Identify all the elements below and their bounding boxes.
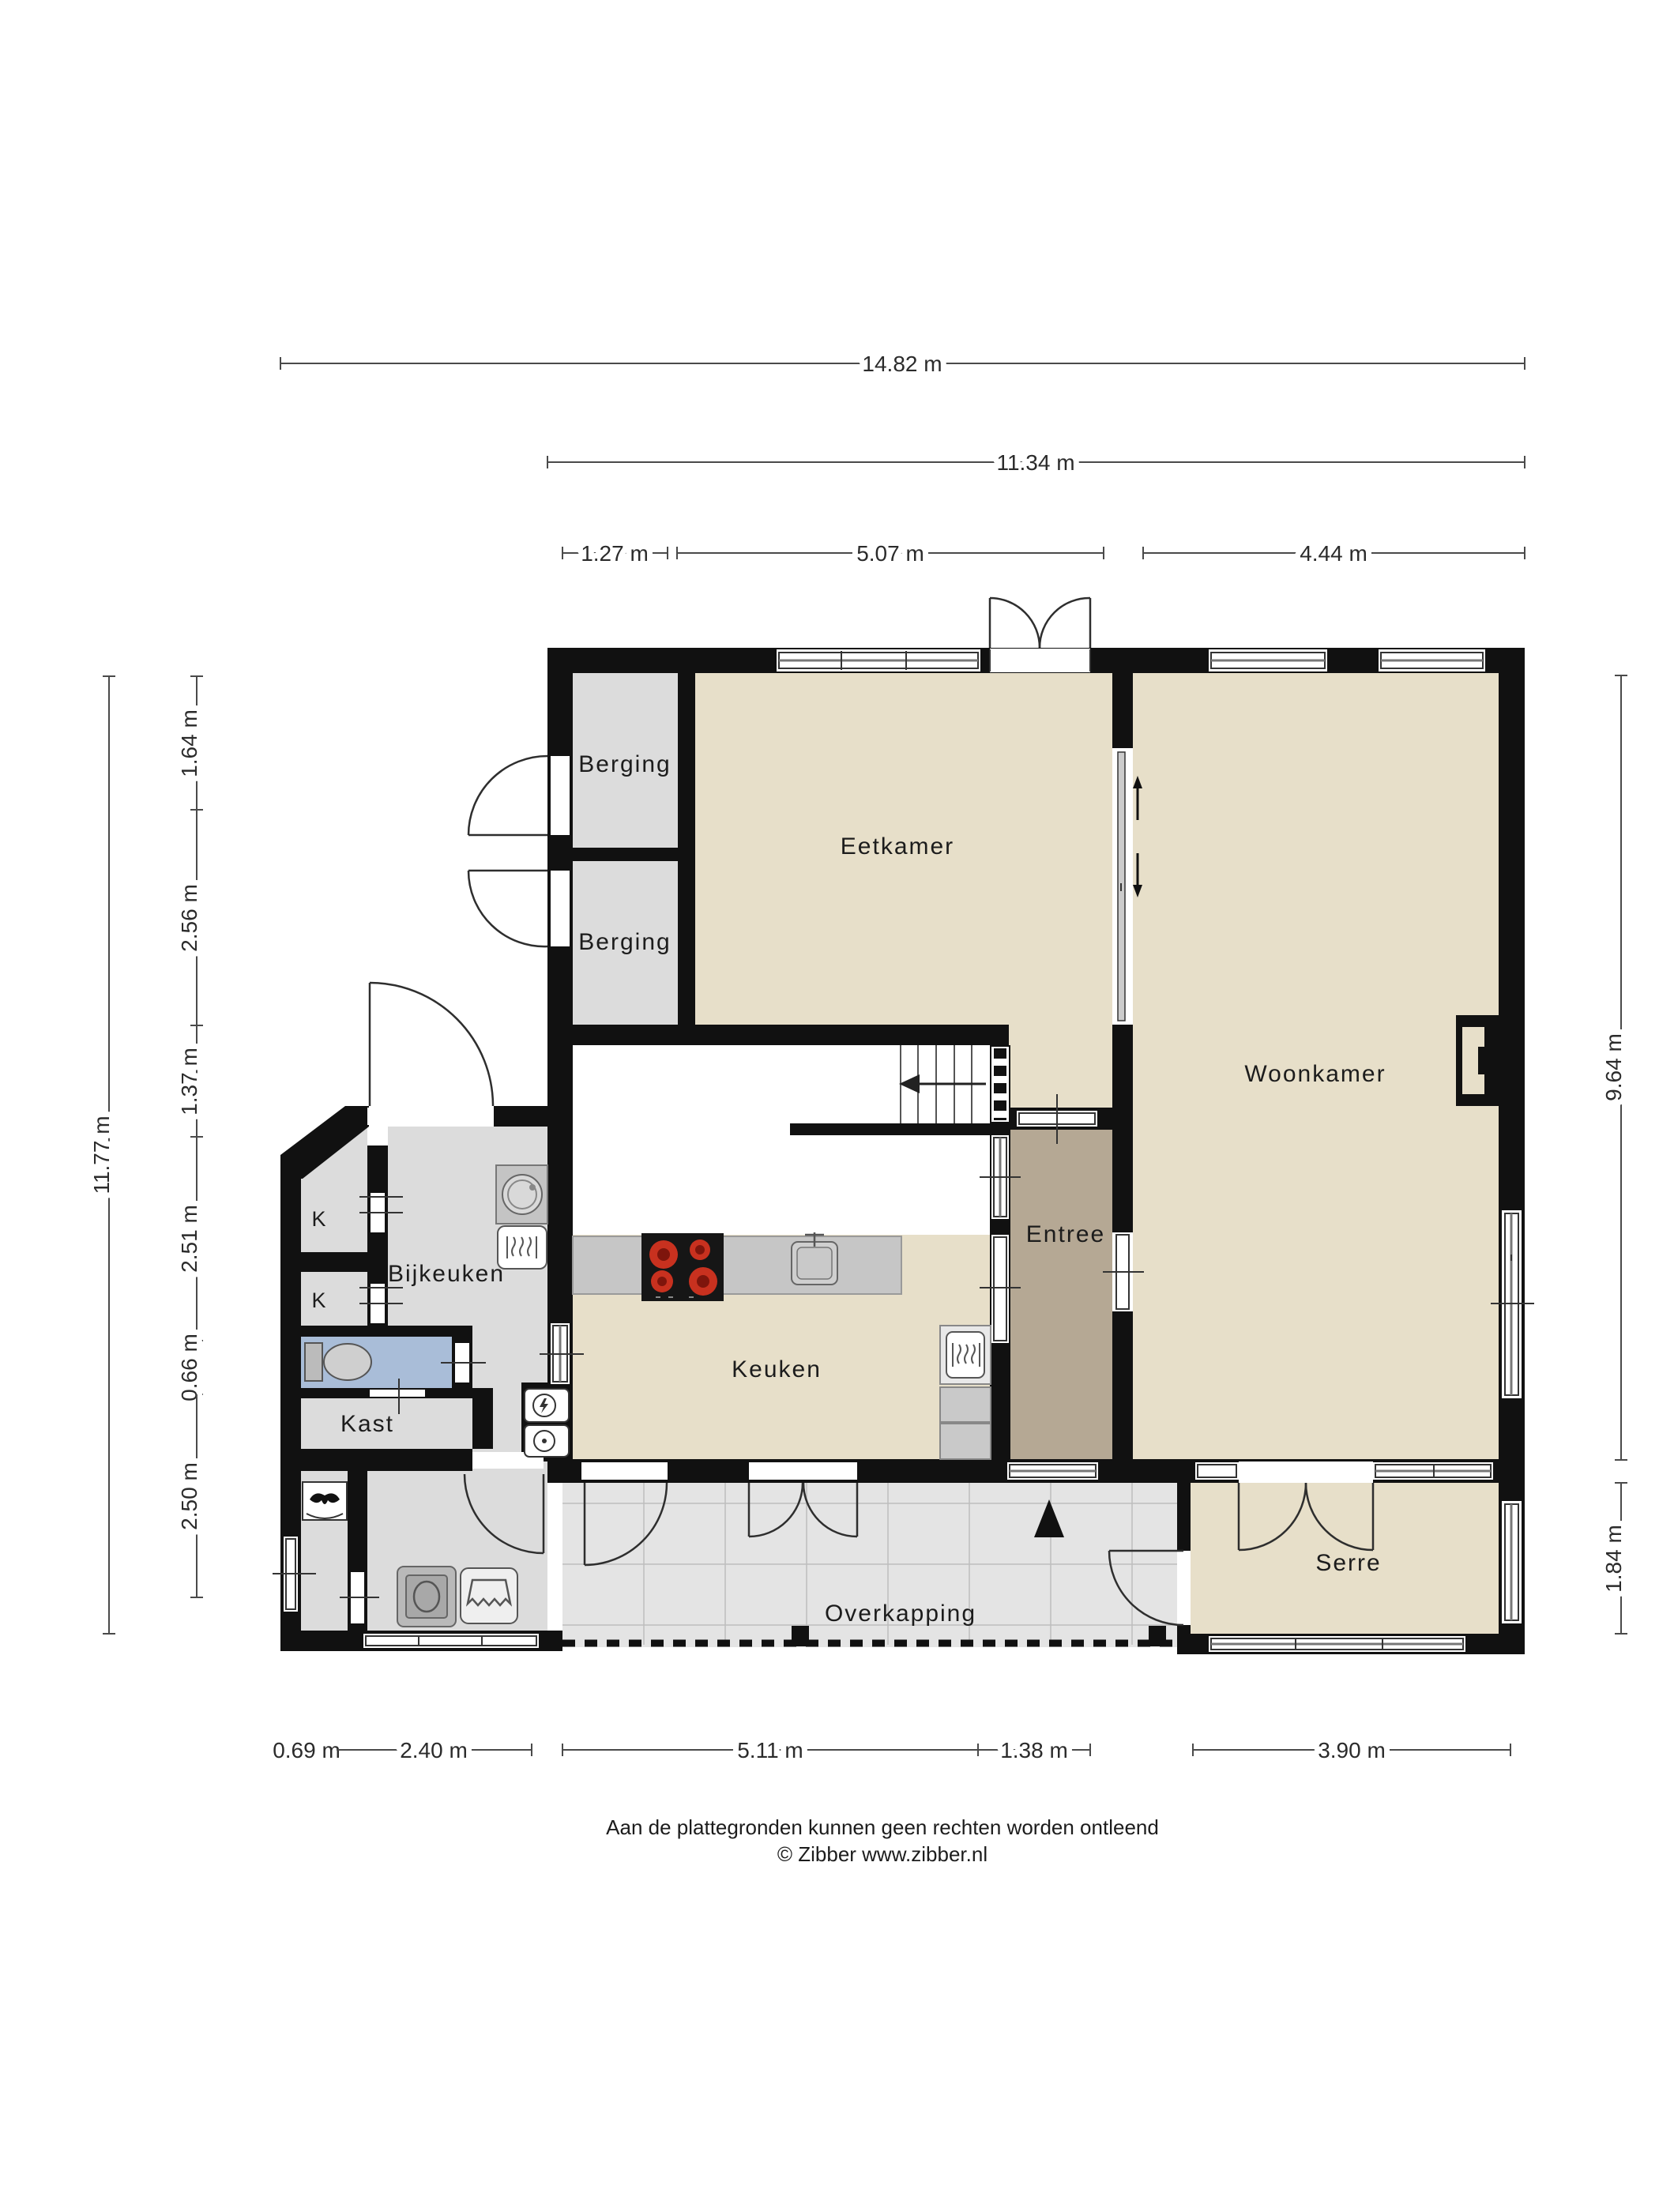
window-entree-bottom (1007, 1462, 1098, 1480)
footer: Aan de plattegronden kunnen geen rechten… (606, 1815, 1159, 1866)
cooktop-icon (641, 1233, 724, 1301)
svg-text:0.69 m: 0.69 m (273, 1738, 340, 1762)
label-eetkamer: Eetkamer (841, 833, 954, 860)
stairs-door-dashed (991, 1047, 1009, 1122)
kitchen-counter (573, 1236, 901, 1294)
svg-text:1.64 m: 1.64 m (177, 709, 201, 777)
svg-text:3.90 m: 3.90 m (1318, 1738, 1386, 1762)
floor-fills (301, 673, 1499, 1647)
wall-under-stairs (790, 1123, 990, 1135)
label-berging1: Berging (578, 751, 671, 777)
overkapping-post-2 (1149, 1626, 1166, 1646)
door-bijkeuken (370, 983, 493, 1106)
room-eetkamer-nook-floor (1009, 1025, 1112, 1108)
wall-entree-right-upper (1112, 1025, 1133, 1232)
dim-top-total: 14.82 m (280, 352, 1525, 376)
svg-text:14.82 m: 14.82 m (862, 352, 942, 376)
kitchen-drawer-2 (940, 1424, 991, 1459)
label-entree: Entree (1026, 1221, 1105, 1247)
label-woonkamer: Woonkamer (1244, 1061, 1386, 1087)
washing-machine-icon (496, 1165, 547, 1224)
window-serre-right (1502, 1501, 1522, 1623)
washer-laundry-icon (397, 1567, 456, 1627)
door-keuken-double-opening (749, 1462, 857, 1480)
footer-disclaimer: Aan de plattegronden kunnen geen rechten… (606, 1815, 1159, 1839)
door-front-double (990, 598, 1090, 648)
svg-text:2.40 m: 2.40 m (400, 1738, 468, 1762)
wall-eetkamer-bottom (547, 1025, 1009, 1045)
svg-text:1.38 m: 1.38 m (1000, 1738, 1068, 1762)
wall-kast-right (472, 1388, 493, 1449)
door-berging2-opening (551, 871, 570, 946)
window-serre-top-2 (1373, 1462, 1493, 1480)
window-eetkamer-top (777, 649, 980, 671)
door-berging2 (468, 871, 547, 946)
floorplan-page: Berging Berging Eetkamer Woonkamer Bijke… (0, 0, 1659, 2212)
wall-annex-top-b (494, 1106, 547, 1127)
label-overkapping: Overkapping (825, 1601, 976, 1627)
svg-text:1.84 m: 1.84 m (1601, 1525, 1626, 1593)
wall-entree-right-lower (1112, 1311, 1133, 1461)
overkapping-post-1 (792, 1626, 809, 1646)
door-berging1-opening (551, 756, 570, 835)
chimney-step (1478, 1047, 1484, 1074)
svg-text:0.66 m: 0.66 m (177, 1334, 201, 1401)
wall-k-divider (301, 1252, 367, 1272)
window-woonkamer-top-2 (1379, 649, 1485, 671)
svg-text:5.11 m: 5.11 m (737, 1738, 803, 1762)
front-door-opening (990, 649, 1090, 672)
dim-left-total: 11.77 m (89, 676, 115, 1634)
dim-right-chain: 9.64 m 1.84 m (1601, 675, 1627, 1634)
svg-text:5.07 m: 5.07 m (856, 541, 924, 566)
serre-double-door-opening (1239, 1461, 1373, 1483)
hallway-floor (573, 1045, 990, 1236)
svg-text:11.34 m: 11.34 m (996, 450, 1074, 475)
door-serre-left-opening (1177, 1551, 1191, 1625)
wall-kast-bottom (301, 1449, 472, 1471)
svg-text:4.44 m: 4.44 m (1300, 541, 1367, 566)
water-meter-icon (525, 1425, 569, 1457)
label-serre: Serre (1315, 1550, 1381, 1576)
svg-text:9.64 m: 9.64 m (1601, 1033, 1626, 1101)
toilet-icon (305, 1343, 371, 1381)
window-serre-bottom (1209, 1636, 1465, 1652)
dim-bottom-chain: 0.69 m 2.40 m 5.11 m 1.38 m 3.90 m (273, 1738, 1510, 1762)
label-kast: Kast (340, 1411, 394, 1437)
window-laundry-bottom (363, 1634, 539, 1648)
room-entree-floor (1010, 1130, 1112, 1461)
svg-text:2.56 m: 2.56 m (177, 884, 201, 952)
oven-icon (940, 1326, 991, 1459)
window-woonkamer-top-1 (1209, 649, 1327, 671)
dim-left-chain: 1.64 m 2.56 m 1.37 m 2.51 m 0.66 m 2.50 … (177, 676, 203, 1597)
svg-text:11.77 m: 11.77 m (89, 1115, 114, 1194)
wall-berging-right (678, 673, 695, 1045)
window-serre-top-1 (1195, 1462, 1239, 1480)
svg-text:2.51 m: 2.51 m (177, 1205, 201, 1273)
footer-copyright: © Zibber www.zibber.nl (777, 1842, 987, 1866)
wall-sliding-top-stub (1112, 673, 1133, 748)
mechanical-ventilation-icon (303, 1482, 347, 1520)
wall-berging-divider (573, 848, 678, 861)
floorplan-canvas: Berging Berging Eetkamer Woonkamer Bijke… (0, 0, 1659, 2212)
electric-meter-icon (525, 1389, 569, 1422)
label-keuken: Keuken (732, 1356, 822, 1382)
dryer-icon (498, 1226, 547, 1269)
dim-top-chain: 1.27 m 5.07 m 4.44 m (562, 541, 1525, 566)
svg-text:1.27 m: 1.27 m (581, 541, 649, 566)
door-bijkeuken-opening (367, 1108, 494, 1125)
svg-text:2.50 m: 2.50 m (177, 1462, 201, 1530)
label-bijkeuken: Bijkeuken (388, 1261, 505, 1287)
svg-text:1.37 m: 1.37 m (177, 1048, 201, 1115)
label-k2: K (311, 1288, 326, 1312)
label-k1: K (311, 1207, 326, 1231)
label-berging2: Berging (578, 929, 671, 955)
wall-toilet-top (301, 1326, 472, 1337)
laundry-basket-icon (461, 1568, 517, 1623)
kitchen-drawer-1 (940, 1387, 991, 1422)
dim-top-main: 11.34 m (547, 450, 1525, 475)
door-berging1 (468, 756, 547, 835)
door-keuken-single-opening (581, 1462, 668, 1480)
